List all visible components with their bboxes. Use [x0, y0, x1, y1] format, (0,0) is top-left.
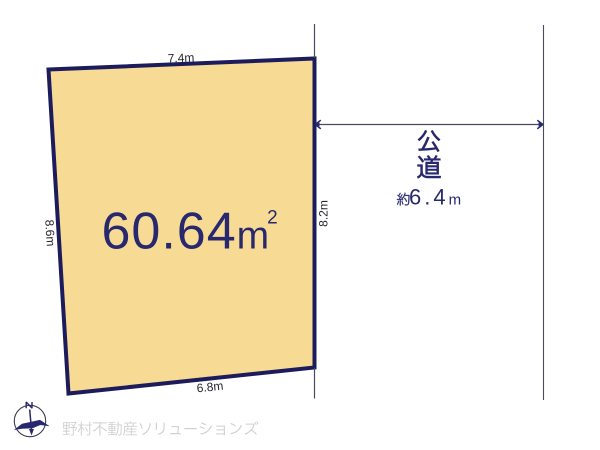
svg-text:7.4m: 7.4m — [167, 50, 194, 65]
svg-text:6.8m: 6.8m — [196, 379, 224, 396]
svg-text:6.4m: 6.4m — [409, 185, 461, 210]
svg-text:8.2m: 8.2m — [317, 200, 331, 227]
svg-text:8.6m: 8.6m — [42, 219, 58, 246]
